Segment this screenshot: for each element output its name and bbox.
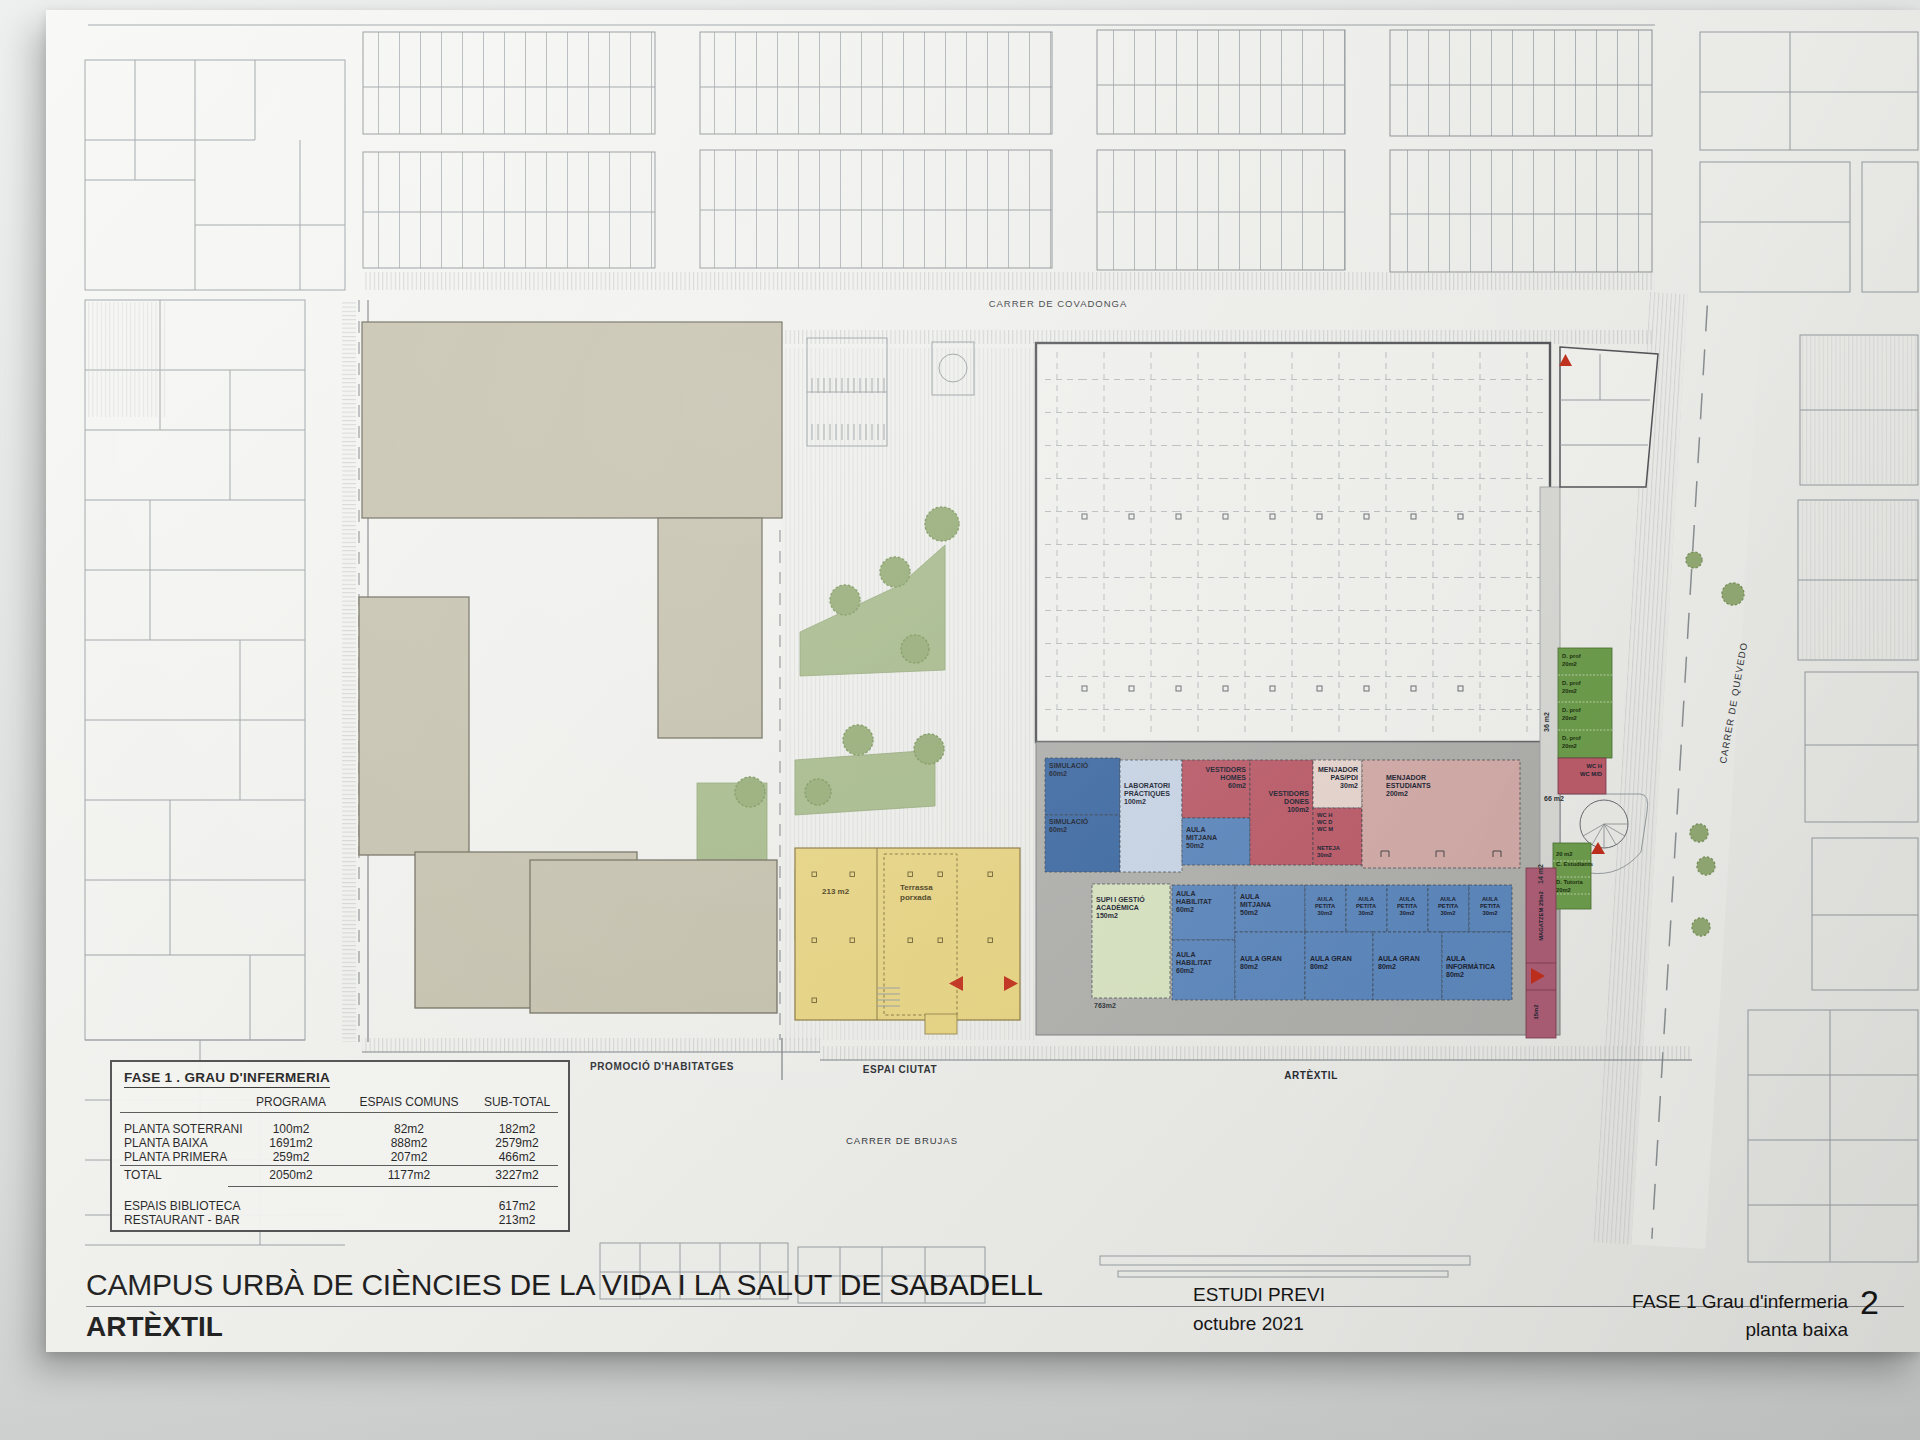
room-label: D. Tutoria: [1556, 879, 1583, 885]
room-label: PRÀCTIQUES: [1124, 789, 1170, 798]
room-label: 60m2: [1176, 906, 1194, 913]
phase-label: FASE 1 Grau d'infermeria: [1500, 1291, 1848, 1313]
cell: 82m2: [350, 1122, 468, 1136]
cell: 182m2: [472, 1122, 562, 1136]
project-title: CAMPUS URBÀ DE CIÈNCIES DE LA VIDA I LA …: [86, 1268, 1043, 1302]
cell: 466m2: [472, 1150, 562, 1164]
room-label: VESTIDORS: [1206, 766, 1247, 773]
room-label: MENJADOR: [1386, 774, 1426, 781]
column-header: ESPAIS COMUNS: [350, 1095, 468, 1109]
room-label: D. prof: [1562, 707, 1581, 713]
room-label: D. prof: [1562, 680, 1581, 686]
room-label: PAS/PDI: [1331, 774, 1359, 781]
room-label: 60m2: [1049, 826, 1067, 833]
room-label: ESTUDIANTS: [1386, 782, 1431, 789]
area-label: 213 m2: [822, 887, 850, 896]
room-label: AULA: [1317, 896, 1334, 902]
room-label: PETITA: [1356, 903, 1377, 909]
area-label: 66 m2: [1544, 795, 1564, 802]
table-rule: [228, 1186, 558, 1187]
row-label: RESTAURANT - BAR: [124, 1213, 324, 1227]
room-label: D. prof: [1562, 653, 1581, 659]
date-label: octubre 2021: [1193, 1313, 1304, 1335]
cell: 259m2: [240, 1150, 342, 1164]
column-header: SUB-TOTAL: [472, 1095, 562, 1109]
area-table: FASE 1 . GRAU D'INFERMERIA PROGRAMA ESPA…: [110, 1060, 570, 1232]
existing-buildings: [359, 322, 782, 1013]
room-label: 80m2: [1310, 963, 1328, 970]
room-label: 80m2: [1446, 971, 1464, 978]
room-label: WC M: [1317, 826, 1333, 832]
room-label: PETITA: [1315, 903, 1336, 909]
room-label: 200m2: [1386, 790, 1408, 797]
zone-labels: PROMOCIÓ D'HABITATGES ESPAI CIUTAT ARTÈX…: [590, 1060, 1338, 1081]
sheet-title: planta baixa: [1500, 1319, 1848, 1341]
cell: 2579m2: [472, 1136, 562, 1150]
cell: 213m2: [472, 1213, 562, 1227]
room-label: 60m2: [1049, 770, 1067, 777]
cell: 2050m2: [240, 1168, 342, 1182]
room-label: 100m2: [1124, 798, 1146, 805]
room-label: AULA GRAN: [1310, 955, 1352, 962]
area-label: 763m2: [1094, 1002, 1116, 1009]
cell: 1177m2: [350, 1168, 468, 1182]
rooms-top-band: [1045, 758, 1520, 872]
room-label: 20m2: [1562, 661, 1577, 667]
cell: 3227m2: [472, 1168, 562, 1182]
room-label: PETITA: [1480, 903, 1501, 909]
room-label: AULA: [1176, 890, 1195, 897]
restaurant-building: [795, 848, 1020, 1034]
area-table-title: FASE 1 . GRAU D'INFERMERIA: [124, 1070, 330, 1088]
room-label: SUPI I GESTIÓ: [1096, 895, 1145, 903]
room-label: DONES: [1284, 798, 1309, 805]
room-label: 20 m2: [1556, 851, 1572, 857]
room-label: 30m2: [1441, 910, 1456, 916]
zone-label-promocio: PROMOCIÓ D'HABITATGES: [590, 1060, 734, 1072]
room-label: 20m2: [1556, 887, 1571, 893]
zone-label-artextil: ARTÈXTIL: [1284, 1069, 1338, 1081]
cell: 207m2: [350, 1150, 468, 1164]
street-label-brujas: CARRER DE BRUJAS: [846, 1135, 958, 1146]
room-label: 30m2: [1317, 852, 1332, 858]
cell: 1691m2: [240, 1136, 342, 1150]
room-label: MITJANA: [1240, 901, 1271, 908]
zone-label-espai-ciutat: ESPAI CIUTAT: [863, 1064, 937, 1075]
room-label: AULA: [1482, 896, 1499, 902]
room-label: NETEJA: [1317, 845, 1341, 851]
street-label-covadonga: CARRER DE COVADONGA: [989, 298, 1128, 309]
room-label: 30m2: [1483, 910, 1498, 916]
area-label: 36 m2: [1543, 712, 1550, 732]
room-label: D. prof: [1562, 735, 1581, 741]
room-label: AULA GRAN: [1240, 955, 1282, 962]
room-label: 50m2: [1240, 909, 1258, 916]
room-label: 150m2: [1096, 912, 1118, 919]
room-label: C. Estudiants: [1556, 861, 1593, 867]
room-label: PETITA: [1397, 903, 1418, 909]
cell: 617m2: [472, 1199, 562, 1213]
room-label: 100m2: [1287, 806, 1309, 813]
room-label: SIMULACIÓ: [1049, 817, 1089, 825]
artextil-hall: [1036, 343, 1550, 742]
cell: 888m2: [350, 1136, 468, 1150]
room-label: LABORATORI: [1124, 782, 1170, 789]
room-label: HOMES: [1220, 774, 1246, 781]
room-label: 20m2: [1562, 688, 1577, 694]
room-label: 80m2: [1378, 963, 1396, 970]
room-label: HABILITAT: [1176, 959, 1213, 966]
room-label: MITJANA: [1186, 834, 1217, 841]
room-label: PETITA: [1438, 903, 1459, 909]
room-label: 15m2: [1533, 1005, 1539, 1020]
room-label: 20m2: [1562, 715, 1577, 721]
column-header: PROGRAMA: [240, 1095, 342, 1109]
room-label: AULA: [1358, 896, 1375, 902]
room-label: 20m2: [1562, 743, 1577, 749]
room-label: MENJADOR: [1318, 766, 1358, 773]
room-label: 30m2: [1318, 910, 1333, 916]
room-label: WC D: [1317, 819, 1332, 825]
room-label: ACADÈMICA: [1096, 903, 1139, 911]
room-label: AULA: [1186, 826, 1205, 833]
terrassa-label: porxada: [900, 893, 932, 902]
building-name: ARTÈXTIL: [86, 1311, 223, 1343]
sheet-number: 2: [1860, 1283, 1879, 1322]
room-label: 80m2: [1240, 963, 1258, 970]
room-label: WC M/D: [1580, 771, 1602, 777]
room-label: AULA GRAN: [1378, 955, 1420, 962]
room-label: VESTIDORS: [1269, 790, 1310, 797]
room-label: 50m2: [1186, 842, 1204, 849]
table-rule: [120, 1165, 558, 1166]
room-label: 60m2: [1176, 967, 1194, 974]
room-label: 60m2: [1228, 782, 1246, 789]
room-label: HABILITAT: [1176, 898, 1213, 905]
room-label: SIMULACIÓ: [1049, 761, 1089, 769]
room-label: WC H: [1587, 763, 1602, 769]
room-label: 30m2: [1359, 910, 1374, 916]
room-label: AULA: [1446, 955, 1465, 962]
room-label: AULA: [1240, 893, 1259, 900]
room-label: 30m2: [1340, 782, 1358, 789]
table-rule: [120, 1112, 558, 1113]
stage-label: ESTUDI PREVI: [1193, 1284, 1325, 1306]
room-label: AULA: [1399, 896, 1416, 902]
room-label: AULA: [1440, 896, 1457, 902]
row-label: ESPAIS BIBLIOTECA: [124, 1199, 324, 1213]
room-label: WC H: [1317, 812, 1332, 818]
room-label: 30m2: [1400, 910, 1415, 916]
terrassa-label: Terrassa: [900, 883, 933, 892]
room-label: MAGATZEM 25m2: [1538, 891, 1544, 941]
cell: 100m2: [240, 1122, 342, 1136]
room-label: AULA: [1176, 951, 1195, 958]
room-label: INFORMÀTICA: [1446, 962, 1495, 970]
area-label: 14 m2: [1537, 864, 1544, 884]
